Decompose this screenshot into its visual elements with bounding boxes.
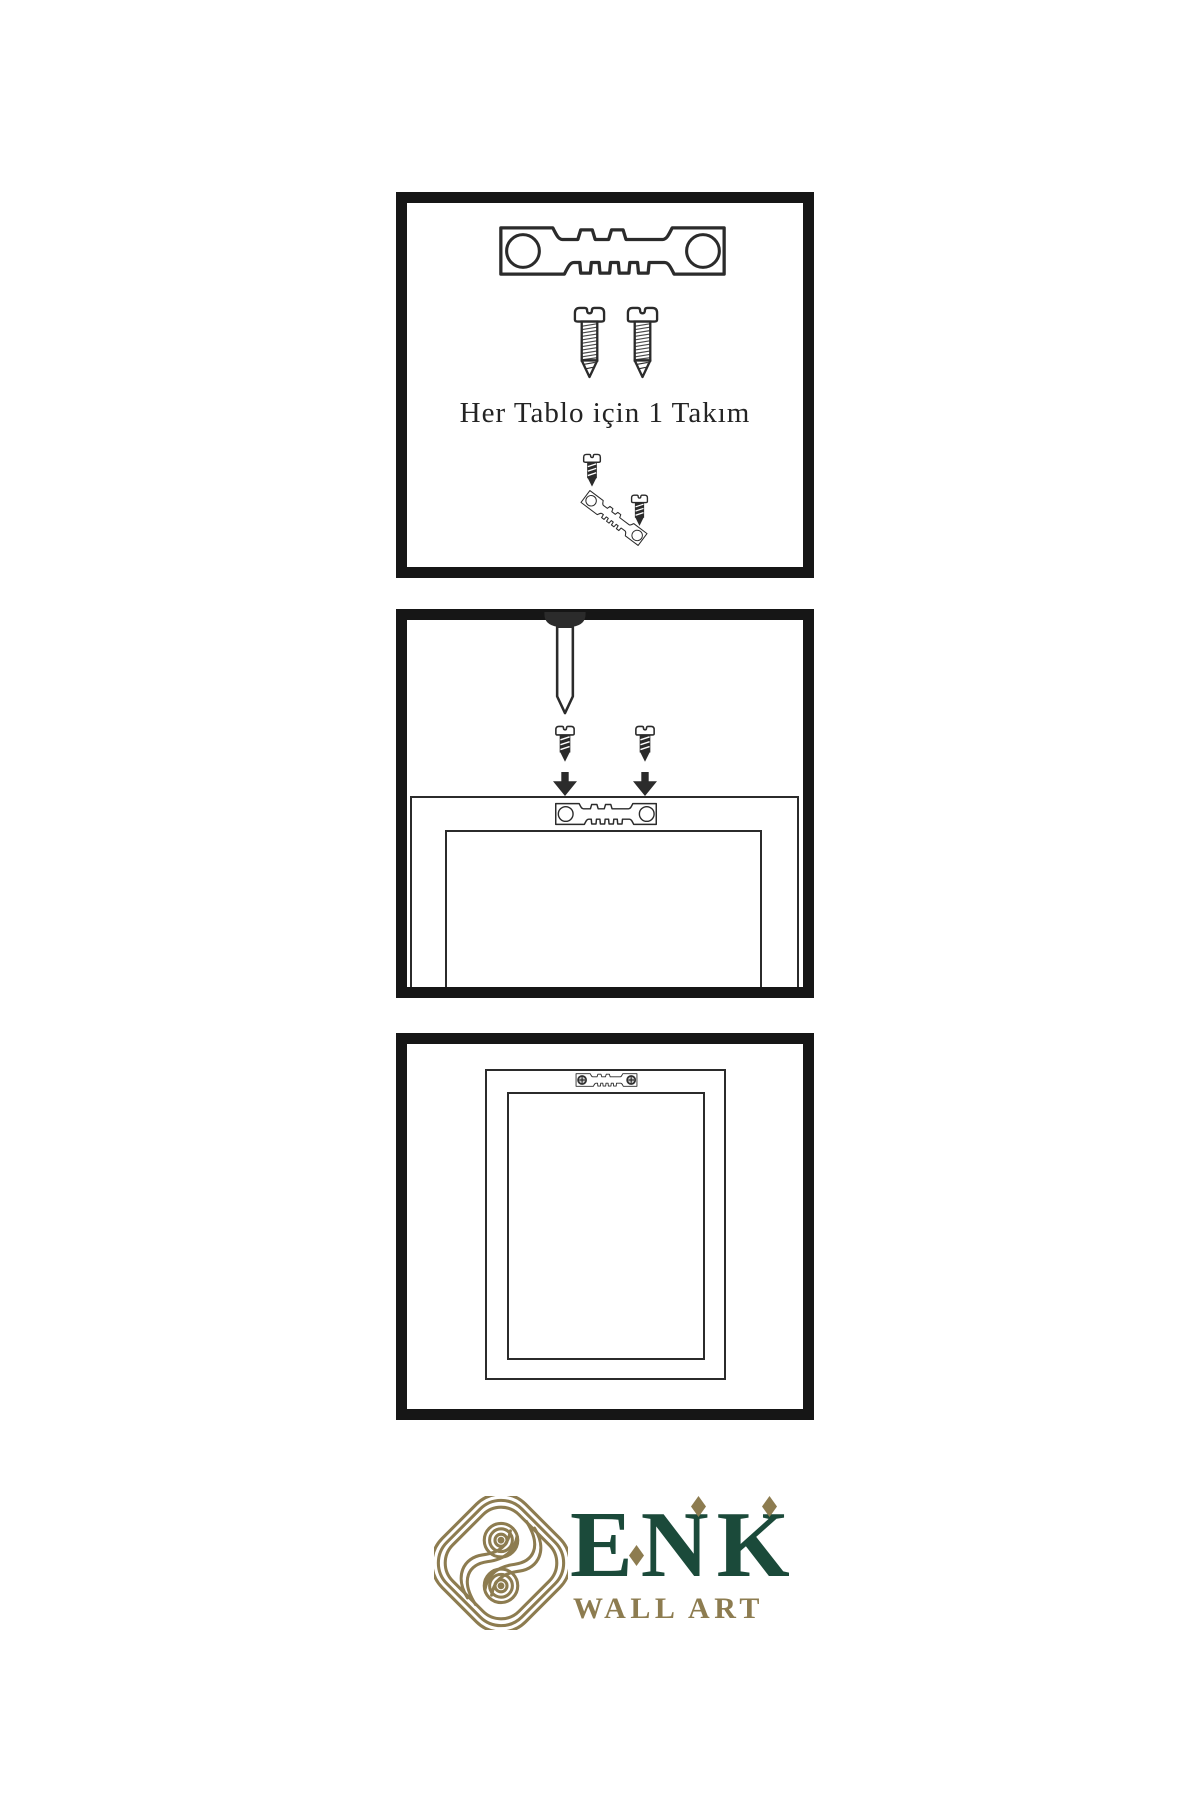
instruction-sheet: Her Tablo için 1 Takım E	[0, 0, 1200, 1800]
brand-tagline: WALL ART	[573, 1592, 764, 1626]
diamond-accent-icon	[691, 1496, 706, 1517]
mounted-sawtooth-hanger-icon	[575, 1072, 638, 1088]
screw-icon	[625, 304, 660, 380]
step-1-caption: Her Tablo için 1 Takım	[396, 397, 814, 430]
diamond-accent-icon	[762, 1496, 777, 1517]
screw-icon	[572, 304, 607, 380]
sawtooth-hanger-icon	[497, 222, 728, 280]
enk-knot-logo-icon	[434, 1494, 568, 1632]
sawtooth-hanger-icon	[554, 801, 658, 827]
frame-inner-edge	[445, 830, 762, 987]
frame-inner-edge	[507, 1092, 705, 1360]
dark-screw-icon	[630, 493, 649, 527]
diamond-accent-icon	[629, 1545, 644, 1566]
dark-screw-icon	[582, 452, 602, 488]
step-2-frame-area	[407, 620, 803, 987]
